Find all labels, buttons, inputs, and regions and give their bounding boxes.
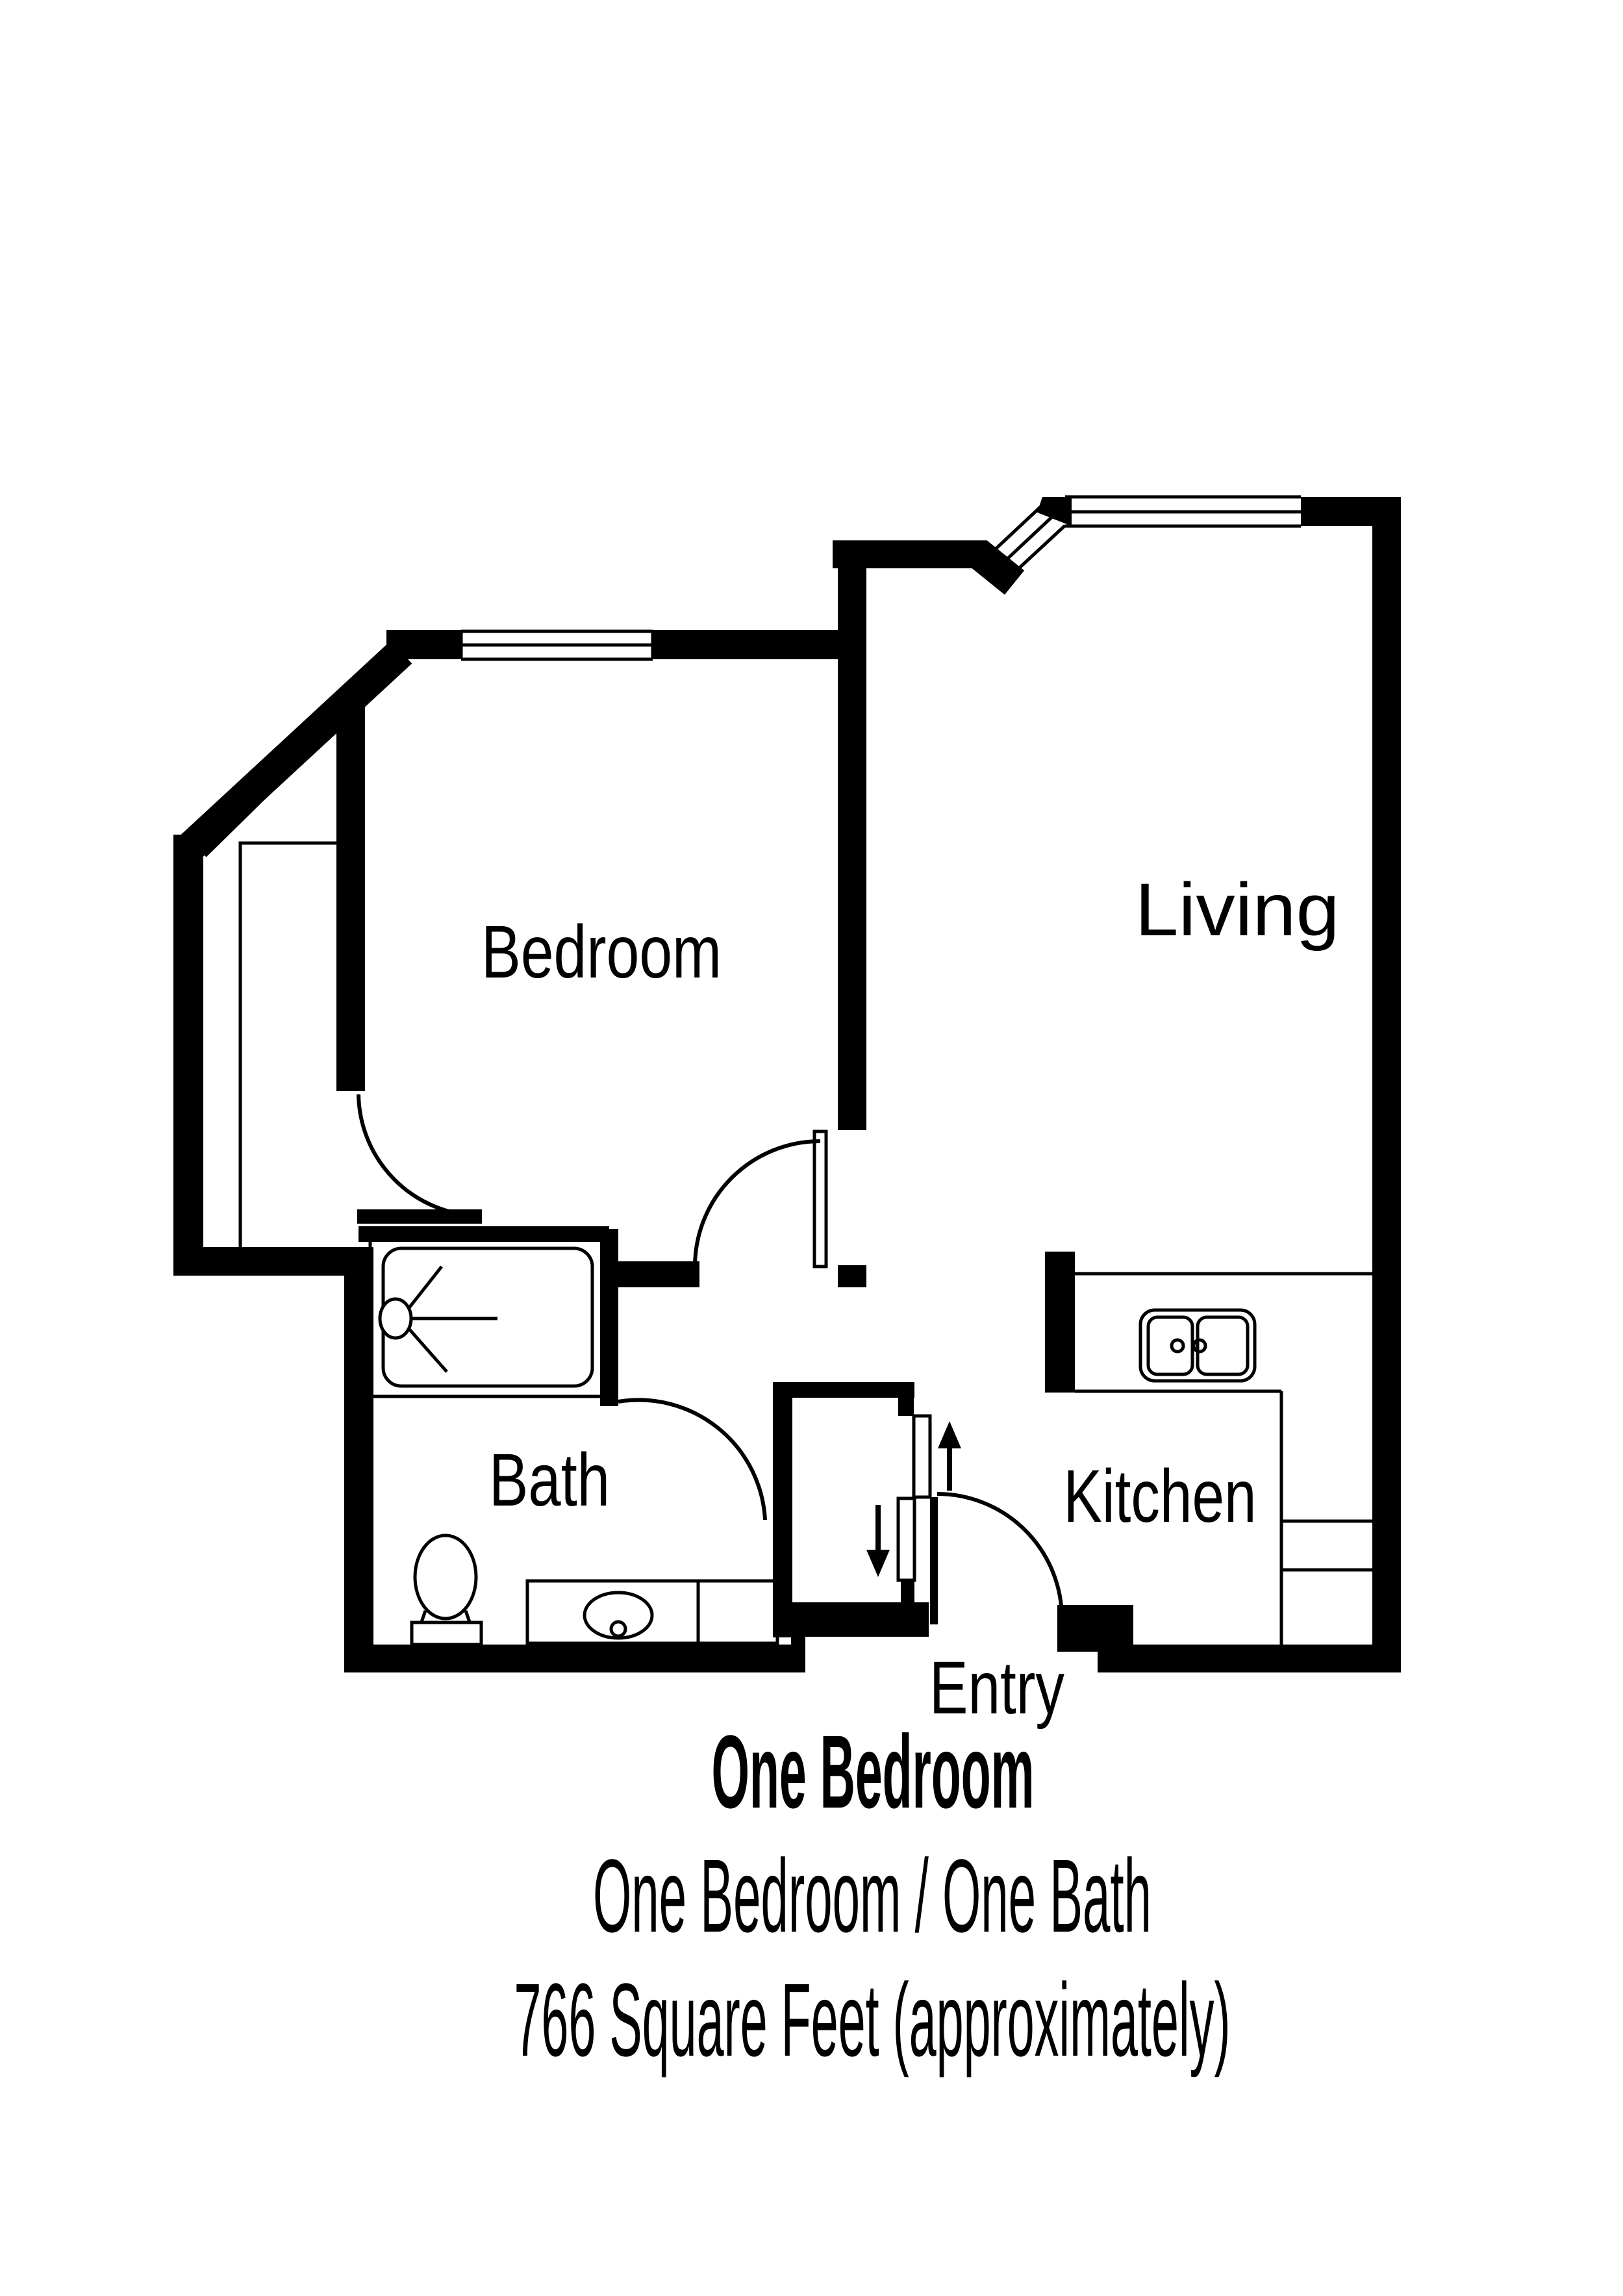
room-label-bath: Bath: [489, 1439, 610, 1522]
room-label-living: Living: [1135, 868, 1340, 952]
caption: One Bedroom One Bedroom / One Bath 766 S…: [514, 1713, 1231, 2078]
living-window-icon: [1065, 497, 1301, 526]
windows: [461, 497, 1301, 659]
floor-plan-page: Bedroom Living Bath Kitchen Entry One Be…: [0, 0, 1623, 2296]
living-door-swing-arc-icon: [695, 1141, 820, 1267]
wall-bedroom-living: [838, 540, 866, 1130]
closet-icon: [240, 843, 338, 1259]
shower-head-icon: [380, 1299, 411, 1338]
bedroom-door-swing-arc-icon: [359, 1094, 481, 1216]
wall-hall-north: [609, 1261, 699, 1287]
door-arcs: [359, 1094, 1062, 1619]
entry-door-swing-arc-icon: [937, 1494, 1062, 1619]
bath-door-swing-arc-icon: [618, 1400, 765, 1520]
wall-kitchen-stub: [1045, 1252, 1075, 1393]
caption-subtitle: One Bedroom / One Bath: [593, 1837, 1151, 1954]
wall-shower-right: [600, 1229, 618, 1406]
floor-plan-drawing: Bedroom Living Bath Kitchen Entry One Be…: [0, 0, 1623, 2296]
wall-kitchen-bottom: [1114, 1645, 1401, 1672]
sliding-door-panels-icon: [898, 1416, 930, 1580]
kitchen-double-sink-icon: [1140, 1310, 1255, 1381]
wall-vestibule-top: [773, 1382, 914, 1398]
wall-entry-door-jamb: [930, 1497, 938, 1624]
room-label-kitchen: Kitchen: [1064, 1455, 1257, 1538]
vanity-sink-icon: [527, 1581, 777, 1643]
wall-entry-right: [1057, 1605, 1117, 1652]
wall-bath-top: [359, 1226, 609, 1242]
wall-bedroom-bottom: [357, 1209, 482, 1224]
entry-out-arrow-icon: [938, 1421, 961, 1491]
wall-right-outer: [1372, 497, 1401, 1672]
wall-bedroom-living-stub: [838, 1265, 866, 1287]
shower-icon: [370, 1242, 600, 1396]
entry-in-arrow-icon: [866, 1505, 890, 1577]
toilet-icon: [412, 1535, 481, 1645]
wall-below-sliding-panels: [901, 1580, 914, 1605]
wall-bedroom-left: [336, 702, 365, 1091]
wall-above-sliding-panels: [898, 1382, 914, 1416]
wall-bedroom-top-left: [386, 630, 461, 659]
wall-outer-diagonal: [186, 652, 401, 851]
caption-area: 766 Square Feet (approximately): [514, 1962, 1231, 2078]
room-label-bedroom: Bedroom: [481, 911, 722, 994]
caption-title: One Bedroom: [712, 1713, 1035, 1830]
bedroom-window-icon: [461, 631, 653, 659]
wall-left-outer: [173, 835, 203, 1276]
wall-bedroom-top-right: [653, 630, 866, 659]
wall-bath-bottom: [344, 1645, 805, 1672]
living-door-leaf: [814, 1131, 826, 1267]
wall-inner-diagonal: [203, 708, 352, 854]
